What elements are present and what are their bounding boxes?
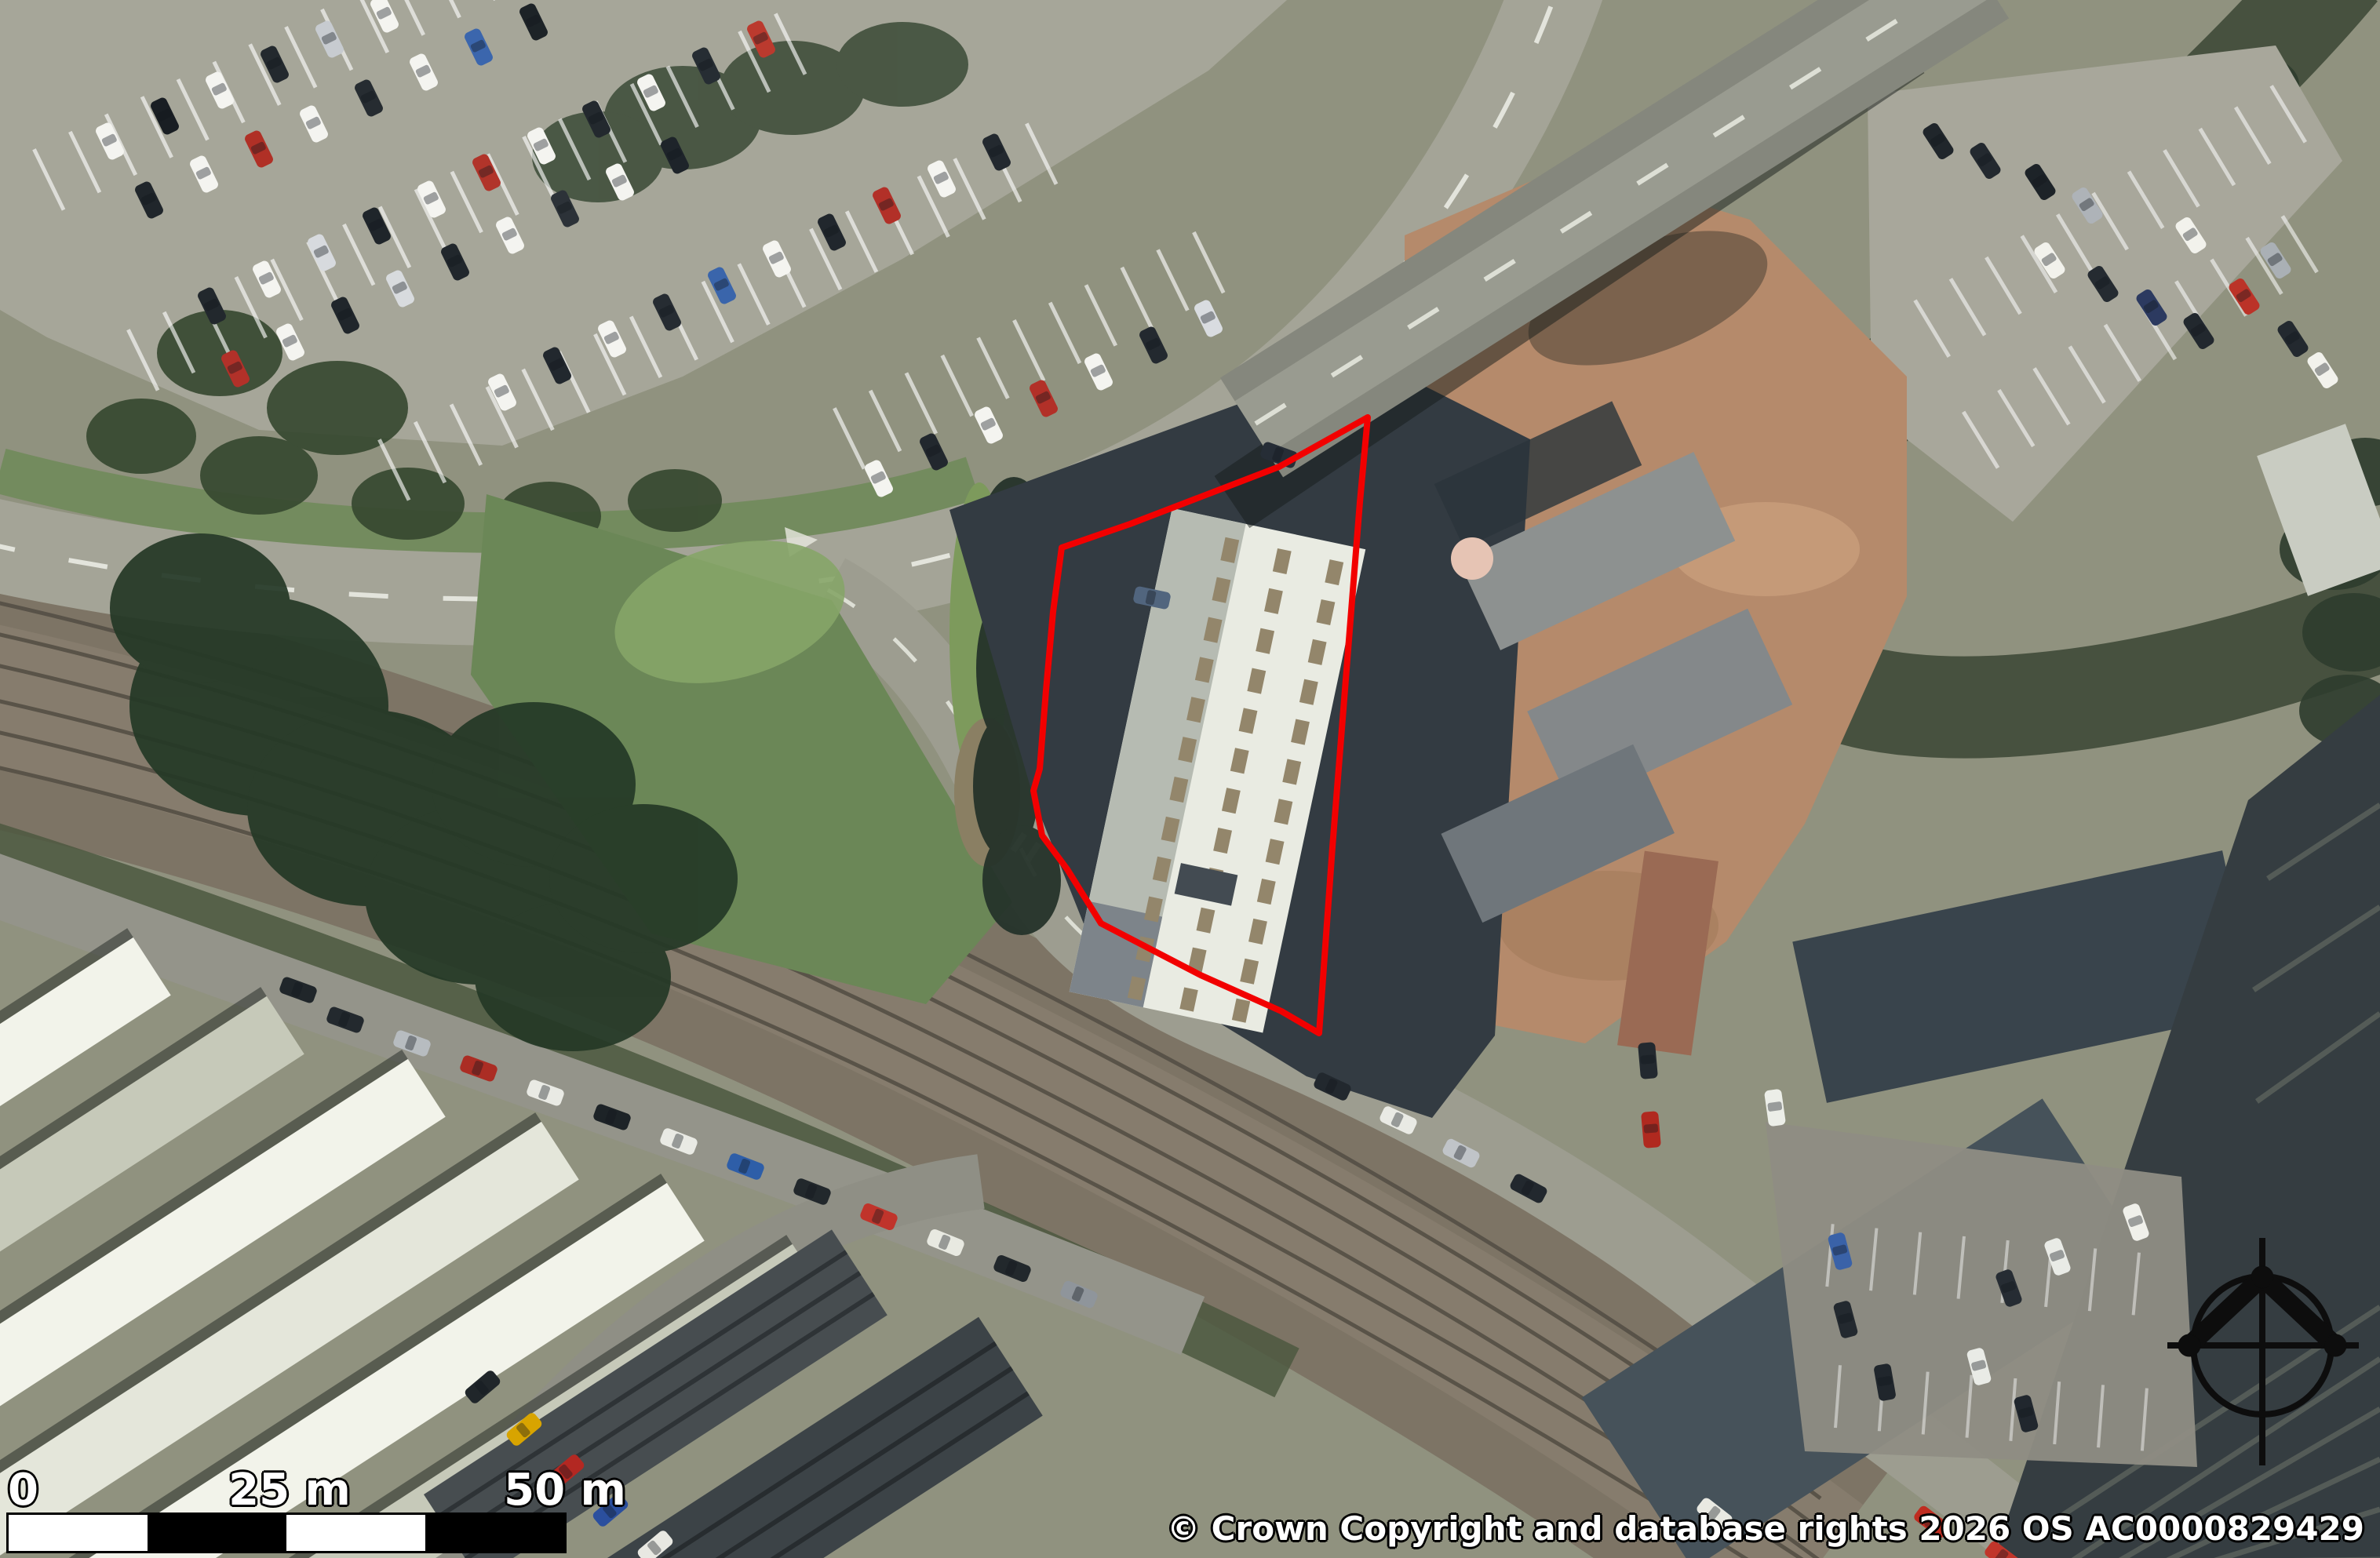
map-scale-bar: 0 25 m 50 m bbox=[6, 1470, 603, 1556]
scale-label-25m: 25 m bbox=[228, 1470, 351, 1511]
copyright-attribution: © Crown Copyright and database rights 20… bbox=[1167, 1509, 2364, 1548]
scale-bar-segments bbox=[6, 1512, 567, 1553]
scale-segment bbox=[148, 1515, 286, 1551]
map-viewport: 0 25 m 50 m © Crown Copyright and databa… bbox=[0, 0, 2380, 1558]
scale-segment bbox=[425, 1515, 564, 1551]
aerial-imagery bbox=[0, 0, 2380, 1558]
scale-label-zero: 0 bbox=[8, 1470, 38, 1511]
scale-segment bbox=[9, 1515, 148, 1551]
scale-segment bbox=[286, 1515, 425, 1551]
scale-label-50m: 50 m bbox=[504, 1470, 626, 1511]
